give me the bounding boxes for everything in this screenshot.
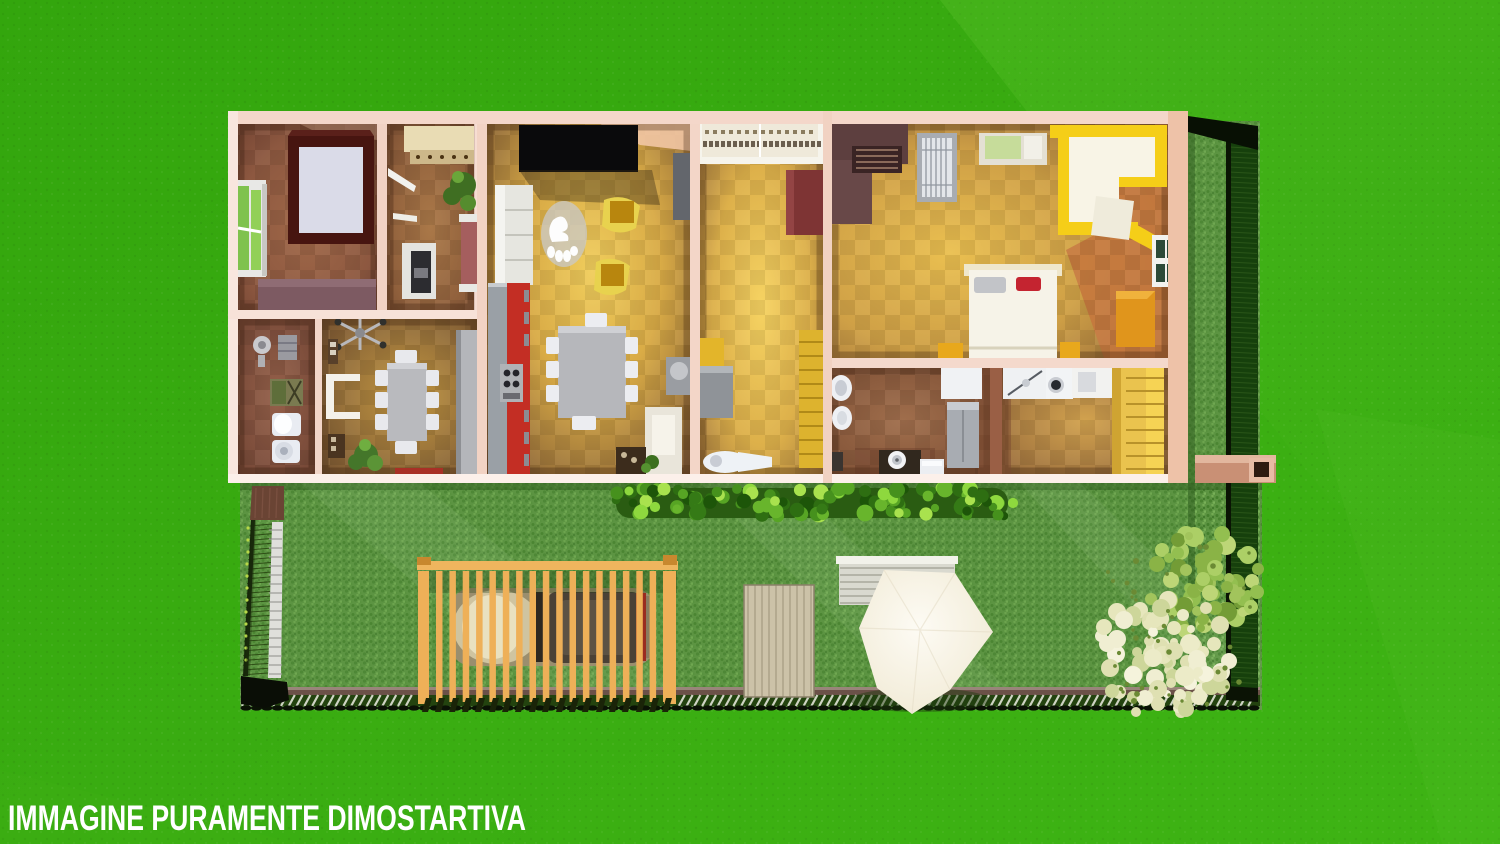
svg-text:IMMAGINE PURAMENTE DIMOSTARTIV: IMMAGINE PURAMENTE DIMOSTARTIVA <box>8 799 526 838</box>
